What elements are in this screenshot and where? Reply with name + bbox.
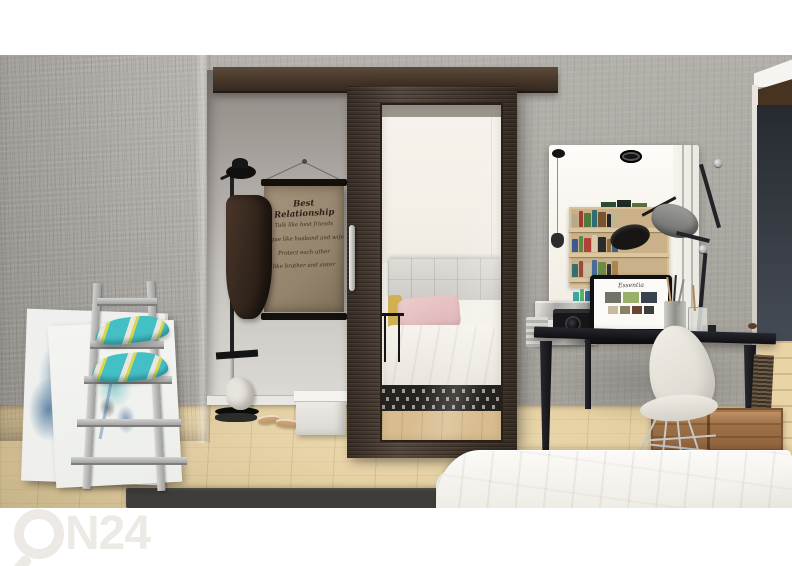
book-spine [572, 264, 578, 277]
book-spine [598, 237, 606, 252]
poster-line: like brother and sister [264, 259, 344, 276]
mirror-glass-sheen [382, 105, 501, 440]
paint-stroke [99, 380, 113, 439]
laptop-page-title: Essentia [594, 281, 668, 289]
pendant-lamp [551, 233, 564, 248]
pendant-wire [557, 157, 558, 235]
laptop-thumbnails [594, 292, 668, 303]
book-spine [598, 212, 606, 227]
book-spine [572, 239, 578, 252]
paper-bag [226, 377, 254, 410]
interior-photo: Best Relationship Talk like best friends… [0, 55, 792, 508]
book-spine [584, 263, 591, 277]
book-spine [584, 213, 591, 227]
laptop-screen-content: Essentia [594, 279, 668, 329]
black-floor-mat [215, 413, 257, 422]
book-spine [584, 238, 591, 252]
wall-poster: Best Relationship Talk like best friends… [260, 173, 348, 325]
book-spine [612, 211, 618, 227]
spotlight-reflection [552, 149, 565, 158]
lamp-joint [699, 245, 707, 253]
door-mirror [380, 103, 503, 442]
sliding-door [347, 86, 517, 458]
magnifier-o-icon [14, 509, 64, 559]
top-white-band [0, 0, 792, 55]
wood-knob [748, 323, 757, 329]
white-duvet [436, 450, 792, 508]
hanging-coat [226, 195, 272, 319]
book-spine [592, 210, 597, 227]
on24-watermark-logo: N24 [14, 507, 150, 561]
ladder-shelf-5 [71, 457, 187, 465]
dark-rug [126, 488, 448, 508]
book-spine [579, 236, 583, 252]
lamp-arm-upper [699, 164, 721, 229]
poster-hook [302, 159, 307, 164]
hat-dome [232, 158, 248, 168]
white-storage-box [296, 391, 346, 435]
book-spine [579, 211, 583, 227]
lamp-joint [714, 159, 722, 167]
book-spine [579, 261, 583, 277]
desk-leg-back [585, 339, 591, 409]
book-spine [592, 235, 597, 252]
magnifier-handle [12, 554, 33, 566]
storage-box-lid [294, 391, 348, 402]
door-handle[interactable] [349, 225, 355, 291]
laptop-thumbnails-small [594, 306, 668, 314]
poster-paper: Best Relationship Talk like best friends… [264, 186, 344, 312]
product-photo-stage: Best Relationship Talk like best friends… [0, 0, 792, 566]
charcoal-wall [757, 105, 792, 343]
ladder-shelf-1 [97, 298, 157, 306]
book-spine [607, 214, 611, 227]
poster-bottom-bar [261, 313, 347, 320]
watermark-text: N24 [65, 510, 150, 558]
spotlight-reflection [620, 150, 642, 163]
book-spine [572, 214, 578, 227]
shelf-board [569, 253, 669, 257]
ladder-shelf-4 [77, 419, 181, 427]
laptop[interactable]: Essentia [590, 275, 672, 333]
poster-top-bar [261, 179, 347, 186]
